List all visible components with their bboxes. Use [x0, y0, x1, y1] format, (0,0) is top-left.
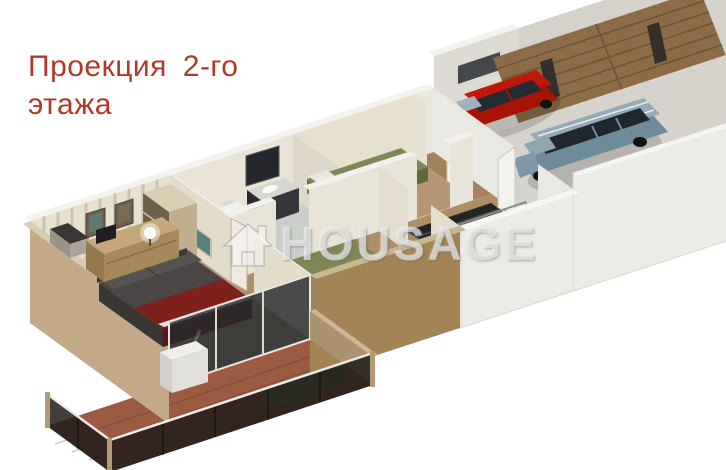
screenshot-root: HOUSAGE Проекция 2-го этажа — [0, 0, 726, 470]
railing-corner-post — [45, 392, 50, 428]
corridor-wall-seg3 — [450, 136, 473, 208]
page-title: Проекция 2-го этажа — [28, 48, 238, 124]
red-car-wheel-rear — [540, 100, 552, 109]
master-door-leaf — [231, 218, 247, 291]
table-lamp — [144, 227, 156, 239]
title-line-1: Проекция 2-го — [28, 48, 238, 86]
railing-corner-post-2 — [107, 438, 112, 470]
title-line-2: этажа — [28, 86, 238, 124]
railing-corner-post-3 — [370, 351, 375, 387]
blue-car-wheel-rear — [633, 137, 647, 147]
